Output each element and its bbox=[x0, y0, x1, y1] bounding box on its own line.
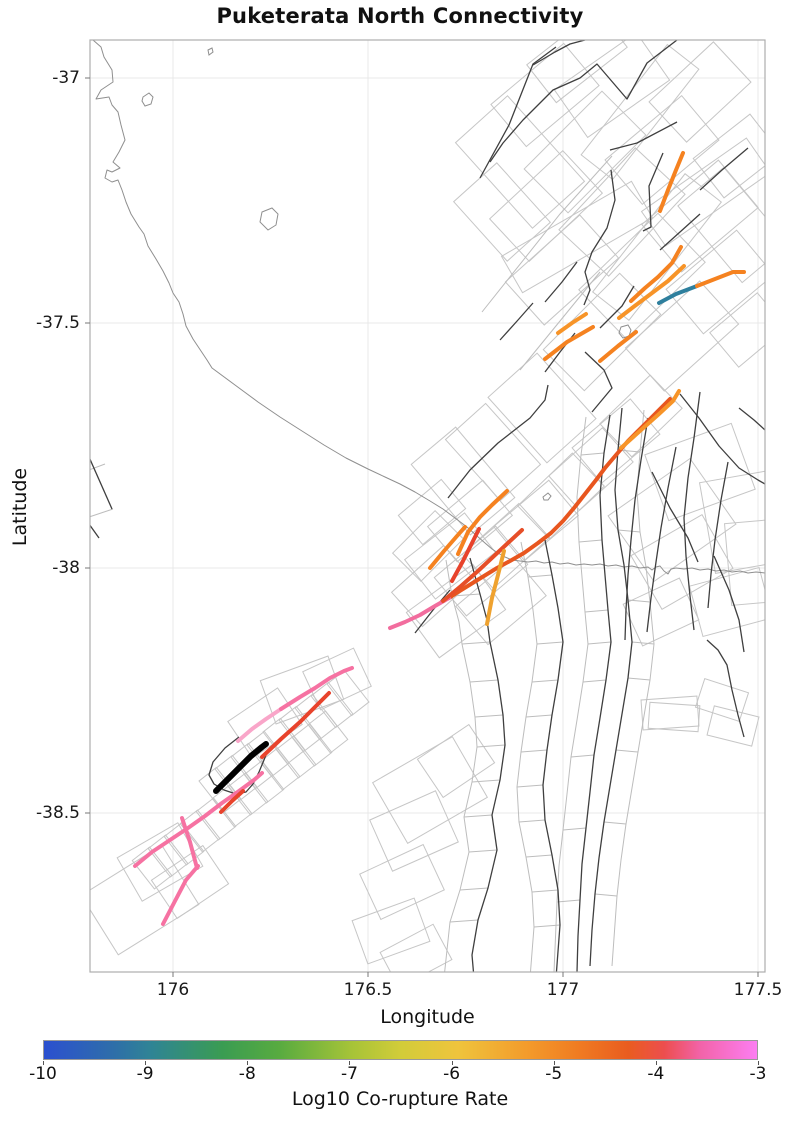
context-fault-trace bbox=[533, 40, 585, 65]
map-plot bbox=[0, 0, 800, 1122]
x-axis-label: Longitude bbox=[90, 1006, 765, 1028]
gray-line bbox=[517, 542, 537, 978]
colorbar-tick-label: -9 bbox=[137, 1064, 154, 1084]
context-fault-trace bbox=[543, 540, 563, 978]
gray-line bbox=[595, 450, 654, 896]
gray-line bbox=[517, 575, 563, 927]
fault-polygon bbox=[488, 353, 596, 463]
colorbar-tick-label: -8 bbox=[239, 1064, 256, 1084]
colorbar-tick-label: -4 bbox=[647, 1064, 664, 1084]
colorbar-tick-label: -3 bbox=[750, 1064, 767, 1084]
fault-polygon bbox=[352, 898, 430, 964]
fault-polygon bbox=[593, 174, 722, 321]
island bbox=[208, 48, 213, 55]
context-fault-trace bbox=[590, 408, 632, 966]
gray-line bbox=[444, 560, 477, 978]
fault-polygon bbox=[502, 181, 653, 292]
y-axis-label: Latitude bbox=[9, 447, 31, 567]
coastline bbox=[93, 40, 765, 574]
gray-line bbox=[482, 156, 612, 312]
fault-polygon bbox=[707, 706, 759, 746]
context-fault-trace bbox=[545, 262, 577, 302]
y-tick-label: -37 bbox=[52, 68, 80, 88]
fault-polygon bbox=[710, 293, 786, 367]
context-fault-trace bbox=[480, 47, 556, 178]
colorbar-tick-label: -5 bbox=[545, 1064, 562, 1084]
fault-polygon bbox=[370, 791, 459, 871]
gray-line-layer bbox=[89, 156, 654, 978]
context-fault-trace bbox=[610, 122, 677, 150]
fault-polygon bbox=[642, 138, 771, 246]
colorbar-tick-label: -10 bbox=[29, 1064, 57, 1084]
fault-polygon bbox=[693, 114, 781, 198]
x-tick-label: 177.5 bbox=[734, 980, 783, 1000]
y-tick-label: -38.5 bbox=[36, 803, 80, 823]
context-fault-trace bbox=[89, 457, 112, 509]
context-fault-trace bbox=[660, 214, 700, 250]
fault-polygon bbox=[625, 281, 738, 391]
fault-polygon bbox=[642, 160, 758, 272]
island bbox=[543, 493, 551, 500]
gray-line bbox=[89, 464, 113, 517]
island bbox=[142, 93, 153, 106]
context-fault-trace bbox=[500, 303, 533, 340]
colorbar bbox=[43, 1040, 758, 1060]
gray-line bbox=[450, 594, 505, 922]
ne-steep-orange bbox=[660, 153, 683, 211]
fault-polygon bbox=[549, 428, 633, 510]
fault-polygon bbox=[623, 578, 699, 646]
context-fault-trace bbox=[707, 640, 744, 737]
puketerata-north-target bbox=[216, 744, 266, 791]
island bbox=[260, 208, 278, 230]
figure: Puketerata North Connectivity Longitude … bbox=[0, 0, 800, 1122]
ne-orange-east bbox=[697, 272, 744, 286]
fault-polygon bbox=[446, 403, 541, 500]
y-tick-label: -38 bbox=[52, 558, 80, 578]
context-fault-trace bbox=[652, 472, 698, 562]
y-tick-label: -37.5 bbox=[36, 313, 80, 333]
cluster-orange-hook bbox=[458, 491, 507, 554]
fault-polygon bbox=[725, 519, 790, 606]
coastline-layer bbox=[93, 40, 765, 574]
fault-polygon bbox=[454, 163, 551, 261]
tick-marks bbox=[85, 78, 758, 977]
rupture-segment-layer bbox=[135, 153, 744, 924]
context-fault-trace bbox=[680, 394, 765, 484]
context-fault-trace bbox=[415, 590, 450, 633]
colorbar-label: Log10 Co-rupture Rate bbox=[0, 1088, 800, 1110]
fault-polygon bbox=[649, 42, 751, 142]
colorbar-tick-label: -7 bbox=[341, 1064, 358, 1084]
context-fault-trace bbox=[448, 385, 548, 498]
mid-orange-a bbox=[545, 327, 593, 359]
colorbar-tick-label: -6 bbox=[443, 1064, 460, 1084]
x-tick-label: 176 bbox=[157, 980, 189, 1000]
fault-polygon bbox=[695, 679, 748, 722]
fault-polygon bbox=[579, 213, 705, 338]
fault-polygon bbox=[303, 648, 372, 710]
sw-pink-long bbox=[135, 773, 262, 866]
context-fault-trace bbox=[600, 286, 634, 328]
map-layers bbox=[81, 9, 789, 987]
x-tick-label: 177 bbox=[547, 980, 579, 1000]
fault-polygon bbox=[360, 845, 445, 920]
context-fault-trace bbox=[708, 462, 728, 608]
gray-line bbox=[612, 410, 654, 966]
fault-polygon bbox=[527, 9, 627, 102]
x-tick-label: 176.5 bbox=[344, 980, 393, 1000]
fault-polygon bbox=[417, 725, 494, 798]
sw-lightpink-upper bbox=[238, 709, 281, 741]
context-fault-trace bbox=[739, 408, 765, 430]
